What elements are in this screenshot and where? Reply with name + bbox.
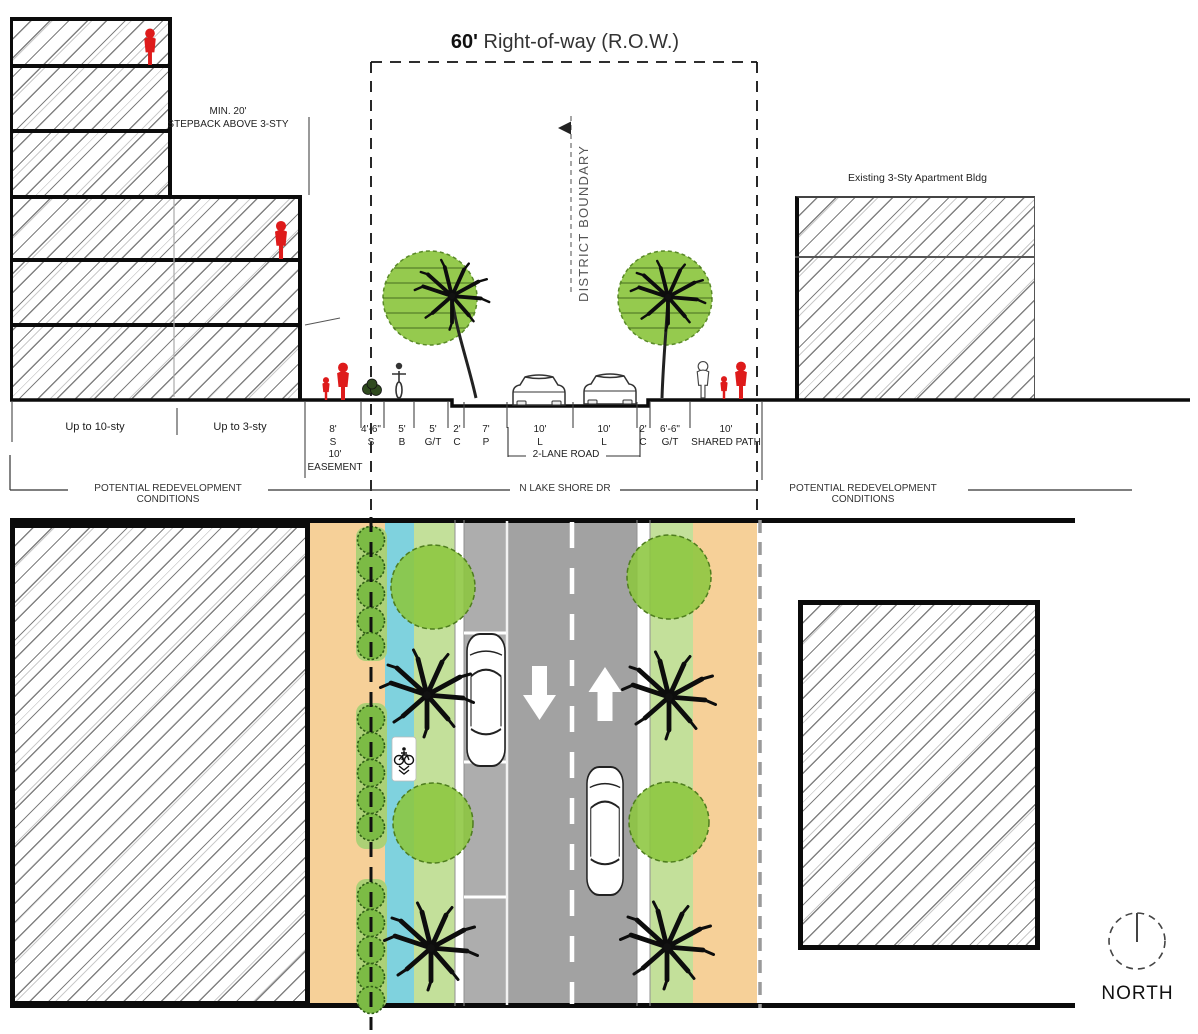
stepback-line1: MIN. 20' — [150, 106, 306, 119]
diagram-artwork — [0, 0, 1198, 1034]
street-shrub-icon — [363, 379, 382, 396]
person-icon — [144, 29, 747, 400]
dim-code: L — [518, 436, 562, 449]
zone-label-3sty: Up to 3-sty — [185, 421, 295, 433]
row-title: 60' Right-of-way (R.O.W.) — [340, 31, 790, 54]
dimension-label: 10'L — [582, 423, 626, 449]
district-boundary-label: DISTRICT BOUNDARY — [576, 122, 591, 302]
dim-code: L — [582, 436, 626, 449]
cyclist-icon — [392, 363, 406, 398]
triangle-left-icon — [558, 122, 571, 135]
zone-label-10sty: Up to 10-sty — [40, 421, 150, 433]
north-label: NORTH — [1090, 983, 1185, 1005]
row-width-value: 60' — [451, 31, 478, 53]
dimension-label: 7'P — [464, 423, 508, 449]
dim-code: SHARED PATH — [682, 436, 770, 449]
easement-dim: 10' — [295, 448, 375, 461]
easement-label: 10' EASEMENT — [295, 448, 375, 474]
baseline-label-street: N LAKE SHORE DR — [511, 483, 619, 494]
dimension-label: 10'SHARED PATH — [682, 423, 770, 449]
dim-value: 7' — [464, 423, 508, 436]
existing-building-label: Existing 3-Sty Apartment Bldg — [800, 172, 1035, 184]
stepback-label: MIN. 20' STEPBACK ABOVE 3-STY — [150, 106, 306, 131]
northbound-arrow-icon — [589, 667, 622, 721]
pedestrian-outline-icon — [697, 362, 709, 398]
streetscape-diagram: 60' Right-of-way (R.O.W.) MIN. 20' STEPB… — [0, 0, 1198, 1034]
dim-value: 10' — [518, 423, 562, 436]
baseline-label-right: POTENTIAL REDEVELOPMENT CONDITIONS — [760, 483, 966, 505]
baseline-label-left: POTENTIAL REDEVELOPMENT CONDITIONS — [70, 483, 266, 505]
car-front-icon — [584, 374, 636, 404]
dimension-label: 10'L — [518, 423, 562, 449]
southbound-arrow-icon — [523, 666, 556, 720]
bicycle-icon — [392, 737, 416, 781]
dim-value: 10' — [582, 423, 626, 436]
podium-leader-line — [305, 318, 340, 325]
dim-value: 10' — [682, 423, 770, 436]
moving-car-top-icon — [587, 767, 623, 895]
north-compass-icon — [1109, 913, 1165, 969]
parked-car-top-icon — [467, 634, 505, 766]
easement-text: EASEMENT — [295, 461, 375, 474]
stepback-line2: STEPBACK ABOVE 3-STY — [150, 119, 306, 132]
car-front-icon — [513, 375, 565, 405]
dim-code: P — [464, 436, 508, 449]
row-title-text: Right-of-way (R.O.W.) — [478, 31, 679, 53]
road-bracket-label: 2-LANE ROAD — [523, 449, 609, 460]
